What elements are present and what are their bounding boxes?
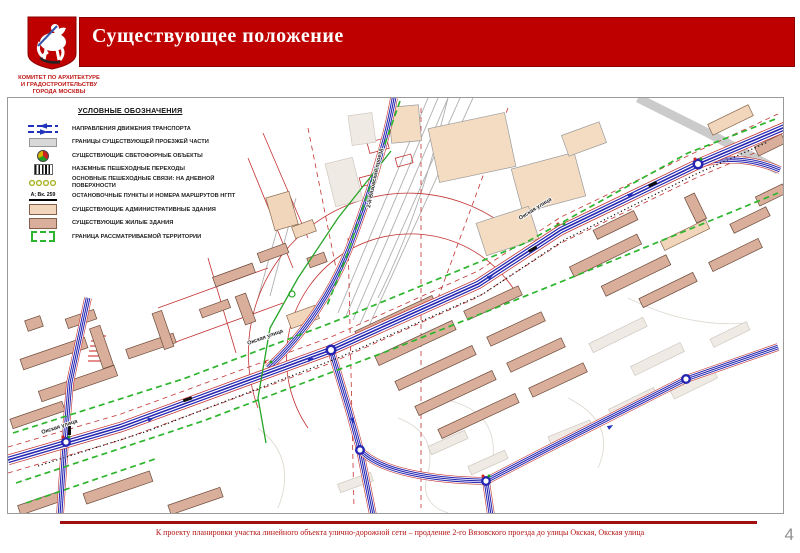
building-footprint xyxy=(631,342,685,375)
building-footprint xyxy=(507,338,566,372)
building-footprint xyxy=(199,299,230,318)
slide: Существующее положение КОМИТЕТ ПО АРХИТЕ… xyxy=(0,0,800,553)
legend-item-label: ОСНОВНЫЕ ПЕШЕХОДНЫЕ СВЯЗИ: НА ДНЕВНОЙ ПО… xyxy=(72,176,240,189)
building-footprint xyxy=(589,317,647,352)
building-footprint xyxy=(487,312,546,346)
building-footprint xyxy=(755,184,783,206)
building-footprint xyxy=(89,325,113,368)
building-footprint xyxy=(569,234,641,277)
building-footprint xyxy=(325,157,363,206)
building-footprint xyxy=(348,112,376,145)
admin-building-icon xyxy=(14,204,72,215)
legend-item: ОСНОВНЫЕ ПЕШЕХОДНЫЕ СВЯЗИ: НА ДНЕВНОЙ ПО… xyxy=(14,176,246,190)
building-footprint xyxy=(38,365,117,401)
committee-caption: КОМИТЕТ ПО АРХИТЕКТУРЕ И ГРАДОСТРОИТЕЛЬС… xyxy=(0,75,118,96)
building-footprint xyxy=(710,322,750,348)
building-footprint xyxy=(561,122,606,156)
legend-item-label: СУЩЕСТВУЮЩИЕ ЖИЛЫЕ ЗДАНИЯ xyxy=(72,220,240,227)
street-label: Окская улица xyxy=(247,328,285,347)
building-footprint xyxy=(213,263,256,287)
legend-item: НАЗЕМНЫЕ ПЕШЕХОДНЫЕ ПЕРЕХОДЫ xyxy=(14,163,246,177)
transit-stop-icon: А; Вк. 259 xyxy=(14,192,72,201)
pedestrian-links-icon xyxy=(14,179,72,187)
building-footprint xyxy=(266,191,298,230)
slide-caption: К проекту планировки участка линейного о… xyxy=(0,528,800,537)
legend-item: ГРАНИЦЫ СУЩЕСТВУЮЩЕЙ ПРОЕЗЖЕЙ ЧАСТИ xyxy=(14,136,246,150)
building-footprint xyxy=(684,193,706,223)
legend-item: А; Вк. 259ОСТАНОВОЧНЫЕ ПУНКТЫ И НОМЕРА М… xyxy=(14,190,246,204)
building-footprint xyxy=(168,487,223,513)
legend-item-label: ГРАНИЦА РАССМАТРИВАЕМОЙ ТЕРРИТОРИИ xyxy=(72,234,240,241)
page-title: Существующее положение xyxy=(92,25,344,48)
legend-item: ГРАНИЦА РАССМАТРИВАЕМОЙ ТЕРРИТОРИИ xyxy=(14,230,246,244)
crosswalk-icon xyxy=(14,164,72,175)
street-label: Окская улица xyxy=(41,418,79,436)
territory-boundary-icon xyxy=(14,231,72,242)
residential-building-icon xyxy=(14,218,72,229)
page-number: 4 xyxy=(785,525,794,545)
legend-items: НАПРАВЛЕНИЯ ДВИЖЕНИЯ ТРАНСПОРТАГРАНИЦЫ С… xyxy=(14,122,246,244)
building-footprint xyxy=(639,272,697,307)
legend-item-label: ГРАНИЦЫ СУЩЕСТВУЮЩЕЙ ПРОЕЗЖЕЙ ЧАСТИ xyxy=(72,139,240,146)
roadway-bounds-icon xyxy=(14,138,72,147)
building-footprint xyxy=(83,471,153,504)
legend-item: СУЩЕСТВУЮЩИЕ АДМИНИСТРАТИВНЫЕ ЗДАНИЯ xyxy=(14,203,246,217)
legend-item-label: СУЩЕСТВУЮЩИЕ СВЕТОФОРНЫЕ ОБЪЕКТЫ xyxy=(72,153,240,160)
building-footprint xyxy=(529,363,588,397)
building-footprint xyxy=(25,316,44,332)
legend-item-label: НАПРАВЛЕНИЯ ДВИЖЕНИЯ ТРАНСПОРТА xyxy=(72,126,240,133)
footer-divider xyxy=(60,521,757,524)
legend-item: НАПРАВЛЕНИЯ ДВИЖЕНИЯ ТРАНСПОРТА xyxy=(14,122,246,136)
traffic-light-icon xyxy=(14,150,72,162)
map-legend: УСЛОВНЫЕ ОБОЗНАЧЕНИЯ НАПРАВЛЕНИЯ ДВИЖЕНИ… xyxy=(14,106,246,244)
legend-title: УСЛОВНЫЕ ОБОЗНАЧЕНИЯ xyxy=(78,106,246,115)
building-footprint xyxy=(709,238,763,271)
building-footprint xyxy=(257,243,289,263)
building-footprint xyxy=(18,491,64,513)
moscow-coat-of-arms-icon xyxy=(26,16,78,70)
direction-arrows-icon xyxy=(14,123,72,135)
legend-item: СУЩЕСТВУЮЩИЕ ЖИЛЫЕ ЗДАНИЯ xyxy=(14,217,246,231)
legend-item-label: НАЗЕМНЫЕ ПЕШЕХОДНЫЕ ПЕРЕХОДЫ xyxy=(72,166,240,173)
building-footprint xyxy=(730,207,770,234)
legend-item: СУЩЕСТВУЮЩИЕ СВЕТОФОРНЫЕ ОБЪЕКТЫ xyxy=(14,149,246,163)
street-label: 2-й Вязовский проезд xyxy=(365,147,385,208)
building-footprint xyxy=(235,293,256,325)
legend-item-label: СУЩЕСТВУЮЩИЕ АДМИНИСТРАТИВНЫЕ ЗДАНИЯ xyxy=(72,207,240,214)
legend-item-label: ОСТАНОВОЧНЫЕ ПУНКТЫ И НОМЕРА МАРШРУТОВ Н… xyxy=(72,193,240,200)
